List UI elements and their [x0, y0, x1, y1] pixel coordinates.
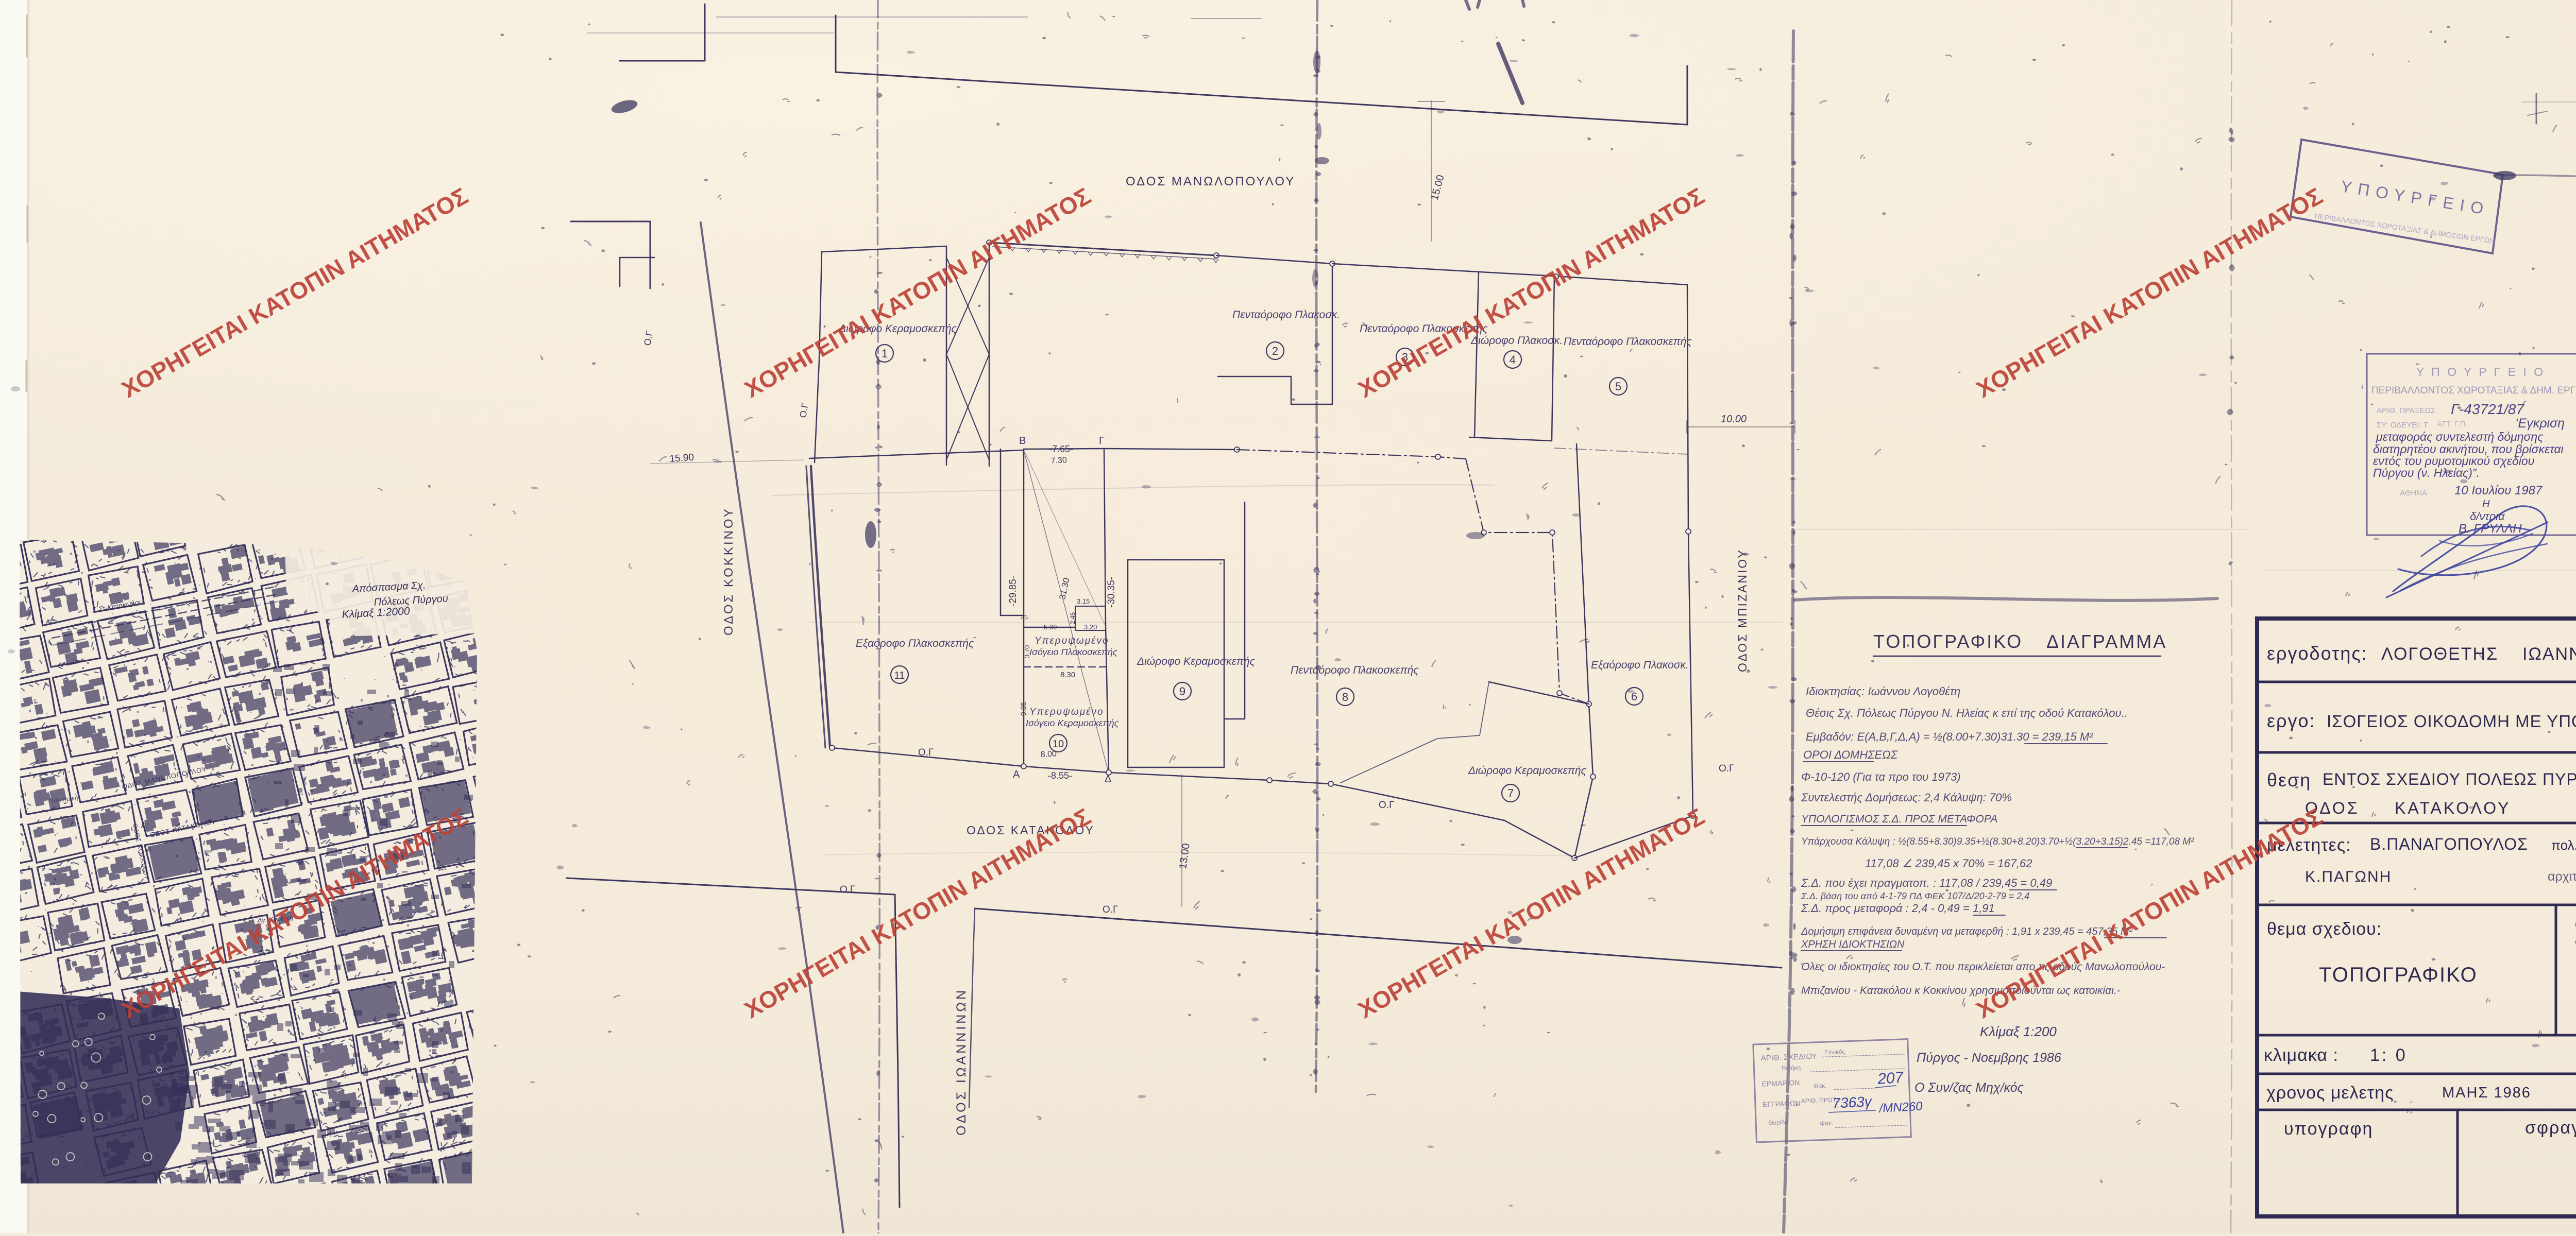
svg-text:4: 4: [1510, 353, 1516, 366]
svg-text:Β: Β: [1019, 435, 1026, 447]
svg-text:Ο.Γ: Ο.Γ: [1719, 763, 1735, 774]
svg-text:5.00: 5.00: [1044, 623, 1057, 631]
svg-text:εργοδοτης:: εργοδοτης:: [2267, 643, 2368, 664]
svg-text:Κλίμαξ 1:200: Κλίμαξ 1:200: [1980, 1024, 2057, 1039]
svg-text:Πενταόροφο Πλακοσκεπής: Πενταόροφο Πλακοσκεπής: [1564, 336, 1692, 348]
svg-text:Υπάρχουσα Κάλυψη : ½(8.55+8.30: Υπάρχουσα Κάλυψη : ½(8.55+8.30)9.35+½(8.…: [1801, 836, 2194, 847]
svg-text:7: 7: [1507, 787, 1514, 800]
svg-text:μεταφοράς συντελεστή δόμησης: μεταφοράς συντελεστή δόμησης: [2376, 430, 2544, 443]
svg-text:εργο:: εργο:: [2267, 710, 2316, 731]
svg-text:Διώροφο Κεραμοσκεπής: Διώροφο Κεραμοσκεπής: [1468, 765, 1587, 777]
svg-text:Μπιζανίου - Κατακόλου κ Κοκκίν: Μπιζανίου - Κατακόλου κ Κοκκίνου χρησιμο…: [1801, 985, 2121, 997]
svg-text:2: 2: [1272, 345, 1278, 357]
svg-text:Πενταόροφο Πλακοσκεπής: Πενταόροφο Πλακοσκεπής: [1291, 664, 1419, 676]
svg-text:Συντελεστής Δομήσεως: 2,4: Συντελεστής Δομήσεως: 2,4 Κάλυψη: 70%: [1801, 791, 2012, 804]
svg-text:ΑΘΗΝΑ: ΑΘΗΝΑ: [2400, 489, 2427, 497]
svg-text:Γ-43721/87: Γ-43721/87: [2451, 401, 2525, 417]
svg-text:υπογραφη: υπογραφη: [2284, 1119, 2373, 1139]
svg-text:9.85: 9.85: [1019, 702, 1027, 716]
svg-text:σφραγιδα: σφραγιδα: [2525, 1118, 2576, 1138]
svg-text:10 Ιουλίου 1987: 10 Ιουλίου 1987: [2454, 484, 2543, 497]
svg-text:αρχιτεκτων: αρχιτεκτων: [2548, 869, 2576, 884]
svg-text:Α: Α: [1013, 769, 1020, 780]
svg-text:δ/ντρια: δ/ντρια: [2470, 510, 2505, 523]
svg-text:11: 11: [894, 670, 905, 681]
svg-text:θεμα σχεδιου:: θεμα σχεδιου:: [2267, 919, 2382, 939]
svg-text:Βιθήκη: Βιθήκη: [1782, 1064, 1801, 1072]
svg-text:Διώροφο Κεραμοσκεπής: Διώροφο Κεραμοσκεπής: [1137, 656, 1256, 667]
svg-text:κλιμακα :: κλιμακα :: [2264, 1045, 2338, 1065]
svg-text:ΕΓΓΡΑΦΩΝ: ΕΓΓΡΑΦΩΝ: [1762, 1099, 1801, 1109]
svg-text:Ο.Γ: Ο.Γ: [1379, 800, 1395, 811]
svg-text:7363γ: 7363γ: [1832, 1093, 1873, 1111]
svg-text:207: 207: [1876, 1069, 1905, 1088]
svg-text:Β.ΠΑΝΑΓΟΠΟΥΛΟΣ: Β.ΠΑΝΑΓΟΠΟΥΛΟΣ: [2370, 835, 2528, 853]
svg-text:8: 8: [1342, 691, 1348, 703]
svg-text:-29.85-: -29.85-: [1008, 576, 1019, 607]
svg-text:ΟΡΟΙ ΔΟΜΗΣΕΩΣ: ΟΡΟΙ ΔΟΜΗΣΕΩΣ: [1803, 748, 1898, 761]
svg-text:Ισόγειο Κεραμοσκεπής: Ισόγειο Κεραμοσκεπής: [1026, 718, 1119, 728]
svg-text:8.30: 8.30: [1060, 671, 1075, 679]
svg-text:1: 1: [882, 347, 888, 360]
svg-text:ΟΔΟΣ ΙΩΑΝΝΙΝΩΝ: ΟΔΟΣ ΙΩΑΝΝΙΝΩΝ: [954, 988, 969, 1136]
svg-text:117,08 ∠ 239,45 x 70% = 167,62: 117,08 ∠ 239,45 x 70% = 167,62: [1865, 857, 2032, 870]
svg-text:/ΜΝ260: /ΜΝ260: [1878, 1100, 1923, 1115]
svg-text:Ο.Γ: Ο.Γ: [918, 747, 934, 758]
svg-text:ΙΣΟΓΕΙΟΣ ΟΙΚΟΔΟΜΗ ΜΕ ΥΠΟΓΕΙ: ΙΣΟΓΕΙΟΣ ΟΙΚΟΔΟΜΗ ΜΕ ΥΠΟΓΕΙΟ: [2327, 712, 2576, 731]
svg-text:Διώροφο Πλακοσκ.: Διώροφο Πλακοσκ.: [1470, 335, 1563, 347]
svg-text:Θέσις Σχ. Πόλεως Πύργου Ν. Ηλε: Θέσις Σχ. Πόλεως Πύργου Ν. Ηλείας κ επί …: [1806, 707, 2128, 719]
svg-text:-8.55-: -8.55-: [1048, 770, 1072, 781]
svg-text:Πενταόροφο Πλακοσκ.: Πενταόροφο Πλακοσκ.: [1232, 309, 1340, 321]
svg-text:Υπερυψωμένο: Υπερυψωμένο: [1029, 707, 1104, 717]
svg-text:Υ Π Ο Υ Ρ Γ Ε Ι Ο: Υ Π Ο Υ Ρ Γ Ε Ι Ο: [2416, 365, 2545, 379]
svg-text:Φακ.: Φακ.: [1820, 1120, 1833, 1127]
svg-text:Β. ΓΡΥΛΛΗ: Β. ΓΡΥΛΛΗ: [2459, 522, 2522, 536]
svg-text:Γενικός: Γενικός: [1825, 1048, 1845, 1056]
svg-text:-7.65-: -7.65-: [1049, 444, 1073, 454]
svg-text:Ο.Γ: Ο.Γ: [1103, 904, 1118, 915]
svg-text:Κ.ΠΑΓΩΝΗ: Κ.ΠΑΓΩΝΗ: [2305, 868, 2392, 885]
svg-text:Φ-10-120 (Για τα προ του 1973): Φ-10-120 (Για τα προ του 1973): [1801, 770, 1961, 783]
svg-text:Φακ.: Φακ.: [1814, 1082, 1827, 1090]
svg-text:Γ: Γ: [1099, 435, 1105, 447]
svg-text:Ιδιοκτησίας: Ιωάννου Λογοθέτη: Ιδιοκτησίας: Ιωάννου Λογοθέτη: [1806, 685, 1960, 698]
svg-text:Η: Η: [2482, 499, 2490, 510]
svg-text:‘Εγκριση: ‘Εγκριση: [2515, 416, 2565, 431]
svg-text:ΔΙΑΓΡΑΜΜΑ: ΔΙΑΓΡΑΜΜΑ: [2046, 631, 2167, 652]
svg-text:ΣΥ: ΟΔΕΥΕΙ: Τ: ΣΥ: ΟΔΕΥΕΙ: Τ: [2377, 421, 2428, 430]
svg-text:3.15: 3.15: [1077, 597, 1090, 605]
svg-text:Θυρίδα: Θυρίδα: [1768, 1119, 1789, 1126]
svg-text:ΠΕΡΙΒΑΛΛΟΝΤΟΣ ΧΩΡΟΤΑΞΙΑΣ &: ΠΕΡΙΒΑΛΛΟΝΤΟΣ ΧΩΡΟΤΑΞΙΑΣ & ΔΗΜ. ΕΡΓΩΝ: [2371, 385, 2576, 396]
svg-text:5: 5: [1615, 380, 1621, 393]
svg-text:3.20: 3.20: [1084, 623, 1097, 631]
svg-text:Ο.Γ: Ο.Γ: [840, 884, 856, 895]
svg-text:ΕΡΜΑΡΙΟΝ: ΕΡΜΑΡΙΟΝ: [1761, 1078, 1800, 1088]
svg-text:ΜΑΗΣ 1986: ΜΑΗΣ 1986: [2442, 1085, 2531, 1101]
svg-text:ΥΠΟΛΟΓΙΣΜΟΣ Σ.Δ. ΠΡΟΣ ΜΕΤΑΦ: ΥΠΟΛΟΓΙΣΜΟΣ Σ.Δ. ΠΡΟΣ ΜΕΤΑΦΟΡΑ: [1801, 813, 1997, 825]
svg-text:ΟΔΟΣ ΚΟΚΚΙΝΟΥ: ΟΔΟΣ ΚΟΚΚΙΝΟΥ: [722, 507, 736, 636]
svg-text:θεση: θεση: [2267, 769, 2311, 791]
svg-text:ΚΑΤΑΚΟΛΟΥ: ΚΑΤΑΚΟΛΟΥ: [2395, 799, 2511, 817]
svg-text:Ο Συν/ζας Μηχ/κός: Ο Συν/ζας Μηχ/κός: [1914, 1080, 2024, 1095]
svg-text:ΑΤΤ. Γ.Π.: ΑΤΤ. Γ.Π.: [2437, 420, 2468, 428]
svg-text:Πύργος - Νοεμβρης 1986: Πύργος - Νοεμβρης 1986: [1917, 1051, 2061, 1065]
svg-text:ΙΩΑΝΝΗΣ: ΙΩΑΝΝΗΣ: [2522, 644, 2576, 664]
svg-text:1: 0: 1: 0: [2370, 1045, 2408, 1065]
svg-text:ΟΔΟΣ ΜΑΝΩΛΟΠΟΥΛΟΥ: ΟΔΟΣ ΜΑΝΩΛΟΠΟΥΛΟΥ: [1126, 175, 1295, 188]
svg-text:ΤΟΠΟΓΡΑΦΙΚΟ: ΤΟΠΟΓΡΑΦΙΚΟ: [2319, 964, 2478, 986]
svg-text:10: 10: [1053, 739, 1064, 750]
svg-text:χρονος μελετης: χρονος μελετης: [2266, 1083, 2394, 1103]
svg-text:ΑΡΙΘ. ΠΡΑΞΕΩΣ: ΑΡΙΘ. ΠΡΑΞΕΩΣ: [2377, 406, 2435, 415]
svg-text:Σ.Δ. που έχει πραγματοπ. : 117: Σ.Δ. που έχει πραγματοπ. : 117,08 / 239,…: [1801, 877, 2052, 889]
svg-text:7.30: 7.30: [1050, 456, 1067, 466]
svg-text:πολ. μηχανικος: πολ. μηχανικος: [2551, 837, 2576, 853]
svg-text:Υπερυψωμένο: Υπερυψωμένο: [1035, 636, 1109, 646]
svg-text:Σ.Δ. προς μεταφορά : 2,4 - 0: Σ.Δ. προς μεταφορά : 2,4 - 0,49 = 1,91: [1801, 902, 1995, 915]
svg-text:Δ: Δ: [1105, 774, 1111, 785]
svg-text:ΛΟΓΟΘΕΤΗΣ: ΛΟΓΟΘΕΤΗΣ: [2381, 644, 2498, 664]
svg-text:ΤΟΠΟΓΡΑΦΙΚΟ: ΤΟΠΟΓΡΑΦΙΚΟ: [1873, 631, 2023, 652]
svg-text:9: 9: [1179, 685, 1185, 698]
svg-text:Εξαόροφο Πλακοσκεπής: Εξαόροφο Πλακοσκεπής: [856, 638, 974, 649]
svg-text:Σ.Δ. βάση του από 4-1-79 ΠΔ ΦΕ: Σ.Δ. βάση του από 4-1-79 ΠΔ ΦΕΚ 107/Δ/20…: [1801, 891, 2029, 901]
svg-text:-30.35-: -30.35-: [1106, 577, 1117, 608]
svg-text:Πύργου (ν. Ηλείας)”.: Πύργου (ν. Ηλείας)”.: [2373, 466, 2480, 479]
svg-text:ΟΔΟΣ ΜΠΙΖΑΝΙΟΥ: ΟΔΟΣ ΜΠΙΖΑΝΙΟΥ: [1736, 548, 1749, 672]
svg-text:Ισόγειο Πλακοσκεπής: Ισόγειο Πλακοσκεπής: [1029, 647, 1117, 657]
svg-text:Εξαόροφο Πλακοσκ.: Εξαόροφο Πλακοσκ.: [1591, 659, 1689, 671]
svg-text:Όλες οι ιδιοκτησίες του Ο.Τ. π: Όλες οι ιδιοκτησίες του Ο.Τ. που περικλε…: [1801, 961, 2165, 973]
svg-text:ΧΡΗΣΗ ΙΔΙΟΚΤΗΣΙΩΝ: ΧΡΗΣΗ ΙΔΙΟΚΤΗΣΙΩΝ: [1801, 939, 1905, 950]
svg-text:ΕΝΤΟΣ ΣΧΕΔΙΟΥ ΠΟΛΕΩΣ ΠΥΡΓ: ΕΝΤΟΣ ΣΧΕΔΙΟΥ ΠΟΛΕΩΣ ΠΥΡΓΟΥ: [2323, 770, 2576, 788]
svg-text:10.00: 10.00: [1721, 414, 1747, 425]
svg-text:Εμβαδόν: Ε(Α,Β,Γ,Δ,Α) = ½(8.00: Εμβαδόν: Ε(Α,Β,Γ,Δ,Α) = ½(8.00+7.30)31.3…: [1806, 730, 2093, 743]
